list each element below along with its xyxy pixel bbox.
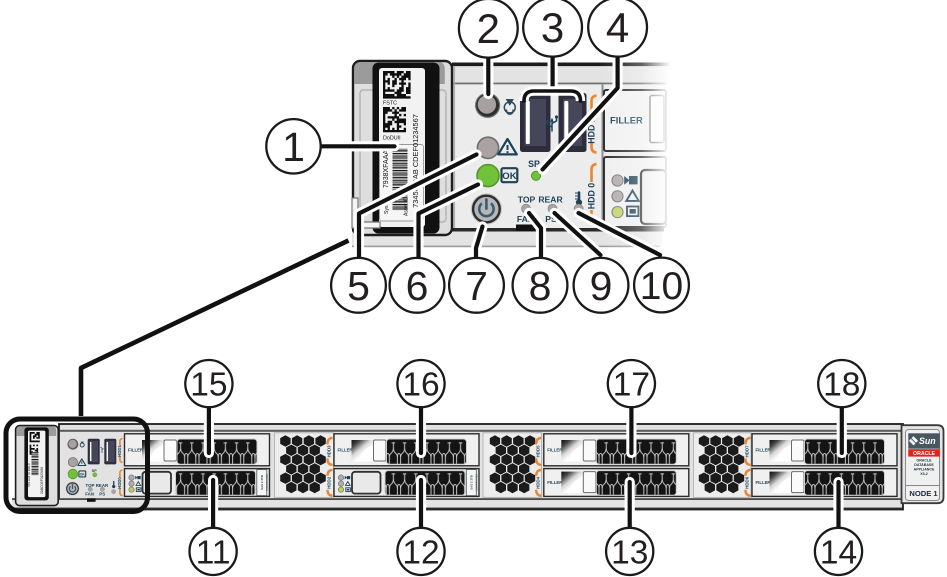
svg-text:DATABASE: DATABASE — [914, 463, 934, 467]
svg-text:4: 4 — [606, 4, 629, 51]
svg-text:7200RPM X12: 7200RPM X12 — [265, 474, 269, 491]
svg-text:HDD6: HDD6 — [745, 476, 750, 489]
svg-text:FILLER: FILLER — [756, 480, 772, 485]
svg-text:6: 6 — [406, 263, 429, 309]
svg-text:8: 8 — [529, 263, 552, 309]
svg-text:2ABCDEF0123456: 2ABCDEF0123456 — [40, 467, 44, 494]
svg-text:APPLIANCE: APPLIANCE — [914, 468, 935, 472]
svg-text:DoDUII: DoDUII — [383, 136, 401, 142]
svg-text:OK: OK — [502, 171, 516, 182]
svg-text:HDD2: HDD2 — [327, 476, 332, 489]
svg-text:73456. 2AB CDEF01234567: 73456. 2AB CDEF01234567 — [411, 114, 420, 208]
svg-text:SAS 2 3TB: SAS 2 3TB — [470, 475, 474, 490]
svg-text:HDD5: HDD5 — [535, 445, 540, 458]
svg-text:HDD 0: HDD 0 — [587, 183, 597, 210]
svg-text:17: 17 — [613, 367, 650, 404]
svg-text:2: 2 — [477, 5, 500, 52]
svg-text:ORACLE: ORACLE — [913, 451, 935, 457]
svg-text:Sun: Sun — [919, 436, 936, 446]
svg-text:FAN: FAN — [85, 491, 94, 496]
svg-text:FILLER: FILLER — [128, 447, 144, 452]
svg-text:12: 12 — [402, 534, 439, 571]
svg-text:15: 15 — [190, 367, 227, 404]
svg-text:7200RPM X12: 7200RPM X12 — [474, 474, 478, 491]
svg-text:FILLER: FILLER — [547, 447, 563, 452]
svg-text:16: 16 — [402, 367, 439, 404]
svg-text:7938XFAAA: 7938XFAAA — [383, 150, 390, 188]
svg-text:HDD4: HDD4 — [535, 476, 540, 489]
svg-text:TOP: TOP — [518, 195, 536, 205]
svg-text:HDD0: HDD0 — [117, 477, 122, 489]
svg-text:FILLER: FILLER — [547, 480, 563, 485]
svg-text:PS: PS — [99, 491, 105, 496]
svg-text:11: 11 — [196, 534, 231, 571]
svg-text:13: 13 — [611, 534, 648, 571]
svg-text:FILLER: FILLER — [756, 447, 772, 452]
svg-text:3: 3 — [541, 4, 564, 51]
svg-text:NODE 1: NODE 1 — [909, 489, 938, 498]
svg-text:Asset ID.: Asset ID. — [404, 196, 410, 216]
svg-text:X3-2: X3-2 — [920, 472, 928, 476]
svg-text:FILLER: FILLER — [338, 447, 354, 452]
svg-text:18: 18 — [823, 367, 860, 404]
svg-text:5: 5 — [347, 263, 370, 309]
svg-text:VW 10370 WA-5: VW 10370 WA-5 — [27, 463, 31, 487]
svg-text:ORACLE: ORACLE — [916, 459, 932, 463]
svg-text:7: 7 — [465, 263, 488, 309]
svg-text:HDD7: HDD7 — [745, 445, 750, 458]
svg-text:REAR: REAR — [538, 195, 563, 205]
svg-text:14: 14 — [820, 534, 857, 571]
svg-text:10: 10 — [640, 265, 683, 308]
svg-text:1: 1 — [282, 124, 305, 170]
svg-text:SP: SP — [92, 469, 98, 473]
svg-text:HDD3: HDD3 — [327, 445, 332, 458]
svg-text:FSTC: FSTC — [383, 101, 397, 107]
svg-text:SAS 2 3TB: SAS 2 3TB — [260, 475, 264, 490]
svg-text:OK: OK — [80, 472, 86, 476]
svg-text:9: 9 — [590, 263, 613, 309]
svg-text:HDD1: HDD1 — [117, 445, 122, 457]
